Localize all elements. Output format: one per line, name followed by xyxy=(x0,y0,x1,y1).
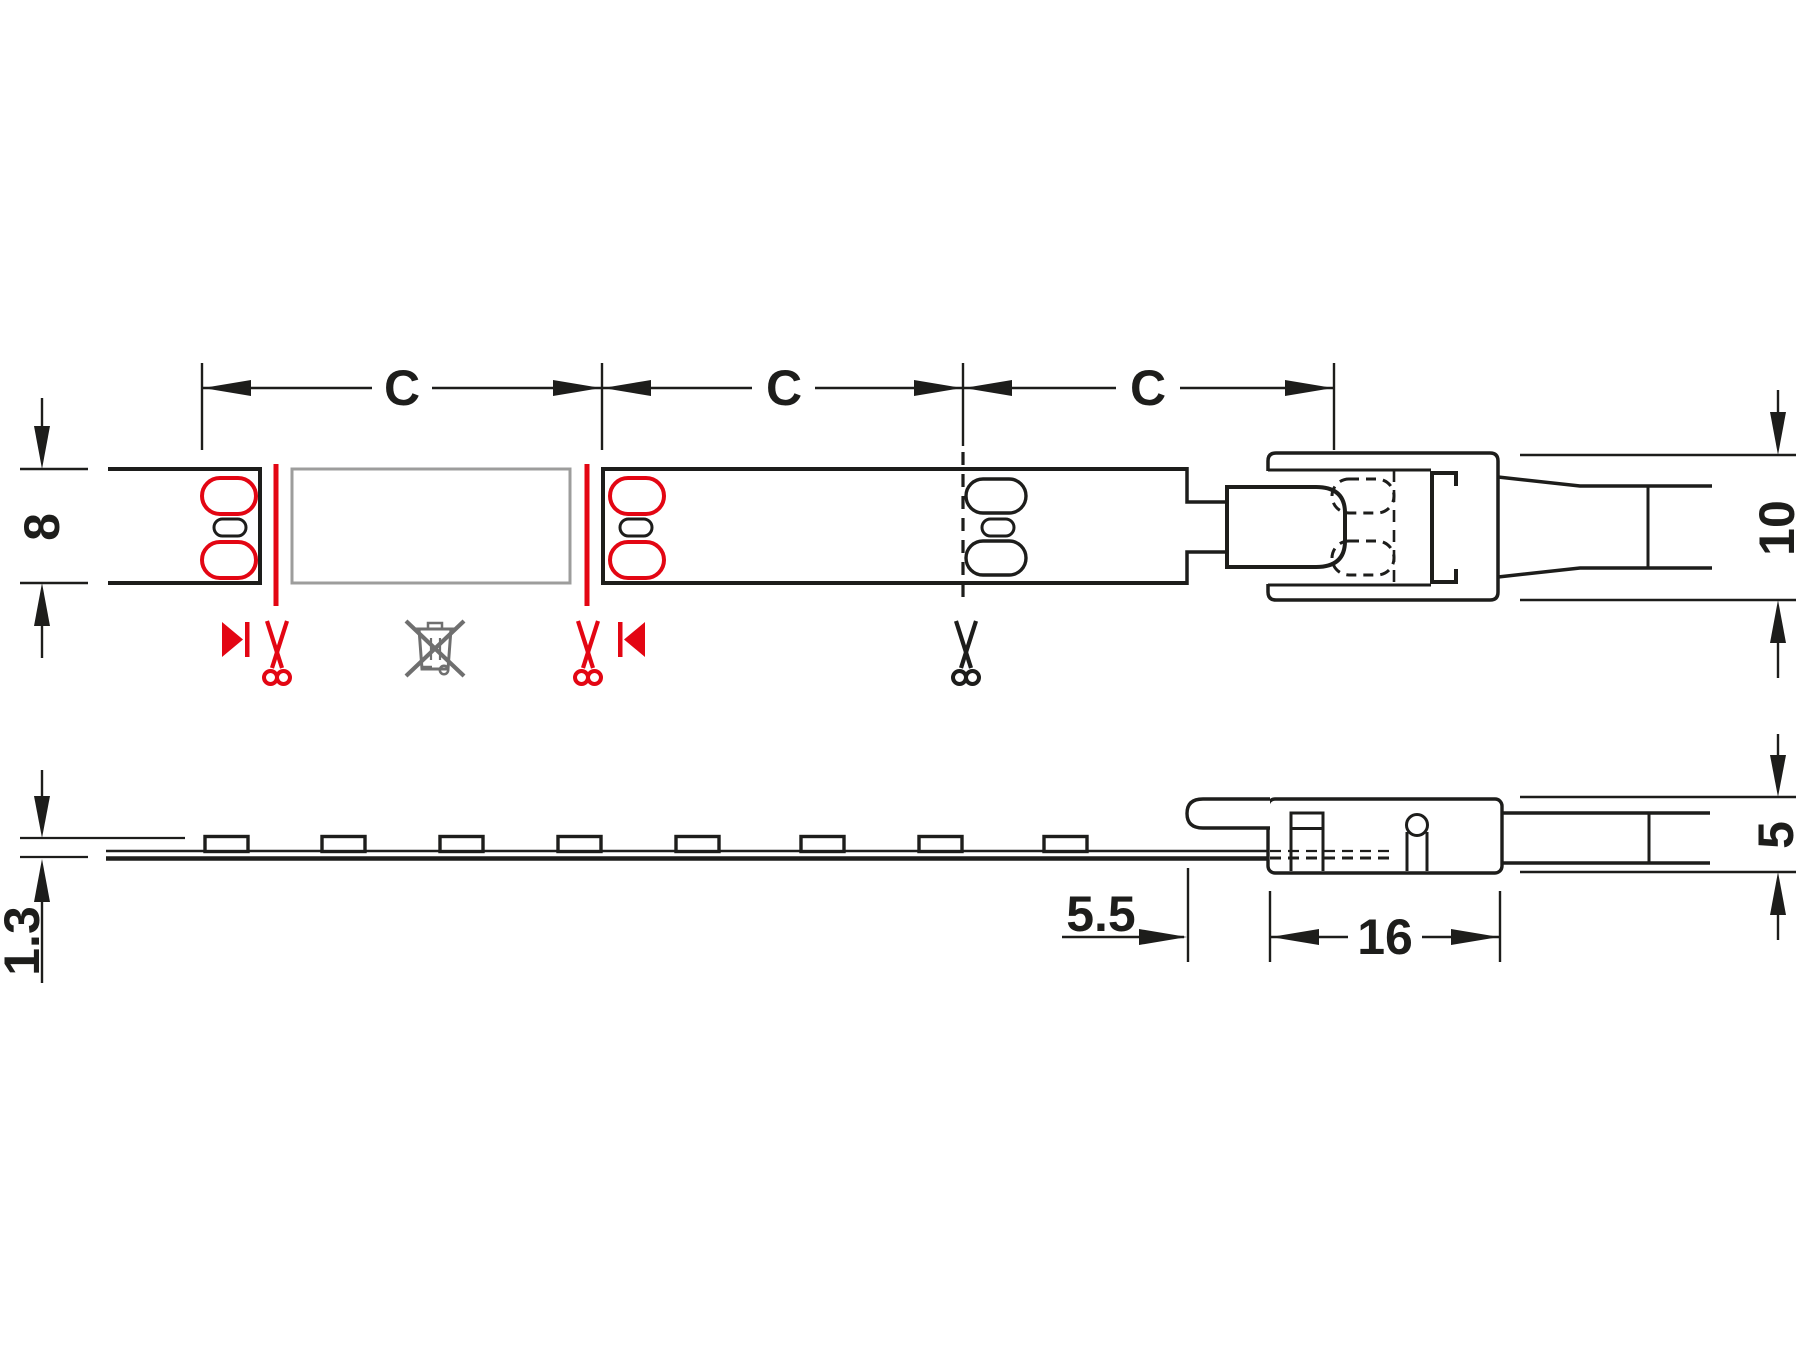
technical-drawing-page: C C C 8 xyxy=(0,0,1800,1350)
connector-tongue xyxy=(1187,799,1270,828)
scissors-icon-black xyxy=(953,621,979,684)
power-cable-top-view xyxy=(1498,477,1712,577)
dimension-connector-length-16: 16 xyxy=(1270,891,1500,965)
led-chip xyxy=(1044,837,1087,852)
led-chip xyxy=(558,837,601,852)
solder-pad xyxy=(610,542,664,578)
connector-housing-outline xyxy=(1268,453,1498,600)
dim-label-5: 5 xyxy=(1748,821,1800,849)
strip-segment-1-outline xyxy=(108,469,260,583)
solder-pads-group-1 xyxy=(202,478,256,578)
side-view: 1.3 5.5 16 xyxy=(0,734,1800,983)
clip-connector-side-view xyxy=(1187,799,1502,873)
clip-hook-top xyxy=(1187,467,1225,502)
alignment-oval xyxy=(214,519,246,536)
dim-label-1-3: 1.3 xyxy=(0,906,50,976)
direction-end-icon xyxy=(618,622,645,657)
led-chip xyxy=(322,837,365,852)
clip-connector-top-view xyxy=(1268,453,1498,600)
connector-body xyxy=(1268,799,1502,873)
alignment-oval xyxy=(982,519,1014,536)
solder-pads-group-2 xyxy=(610,478,664,578)
top-view: C C C 8 xyxy=(14,360,1800,684)
solder-pad xyxy=(202,542,256,578)
clip-hook-bottom xyxy=(1187,552,1225,585)
dim-label-5-5: 5.5 xyxy=(1066,886,1136,942)
hidden-solder-pads-dashed xyxy=(1332,470,1394,585)
led-chip xyxy=(919,837,962,852)
led-chip xyxy=(440,837,483,852)
label-area-box xyxy=(292,469,570,583)
contact-saddle xyxy=(1227,487,1345,567)
dimension-connector-height-5: 5 xyxy=(1520,734,1800,940)
scissors-icon-red-2 xyxy=(575,621,601,684)
dimension-connector-width-10: 10 xyxy=(1520,390,1800,678)
power-cable-side-view xyxy=(1502,813,1710,863)
direction-start-icon xyxy=(222,622,250,657)
scissors-icon-red-1 xyxy=(264,621,290,684)
led-chips xyxy=(205,837,1087,852)
dimension-thickness-1-3: 1.3 xyxy=(0,770,50,983)
solder-pads-group-3 xyxy=(966,479,1026,575)
solder-pad xyxy=(202,478,256,514)
strip-segment-1 xyxy=(108,469,260,583)
dim-label-c3: C xyxy=(1130,360,1166,416)
solder-pad xyxy=(966,541,1026,575)
dim-label-c1: C xyxy=(384,360,420,416)
solder-pad xyxy=(610,478,664,514)
led-chip xyxy=(676,837,719,852)
dim-label-c2: C xyxy=(766,360,802,416)
strip-segment-2-outline xyxy=(603,469,1187,583)
connector-end-bracket xyxy=(1432,473,1456,582)
cut-instruction-icons xyxy=(222,621,979,684)
dim-label-16: 16 xyxy=(1357,909,1413,965)
led-chip xyxy=(801,837,844,852)
no-waste-bin-icon xyxy=(406,621,464,676)
dim-label-8: 8 xyxy=(14,513,70,541)
strip-segment-2 xyxy=(603,452,1345,606)
dim-label-10: 10 xyxy=(1749,500,1800,556)
dimension-c-chain: C C C xyxy=(202,360,1334,450)
dimension-strip-width-8: 8 xyxy=(14,398,88,658)
solder-pad xyxy=(966,479,1026,513)
dimension-tongue-5-5: 5.5 xyxy=(1062,868,1188,962)
alignment-oval xyxy=(620,519,652,536)
led-strip-dimension-drawing: C C C 8 xyxy=(0,0,1800,1350)
led-chip xyxy=(205,837,248,852)
